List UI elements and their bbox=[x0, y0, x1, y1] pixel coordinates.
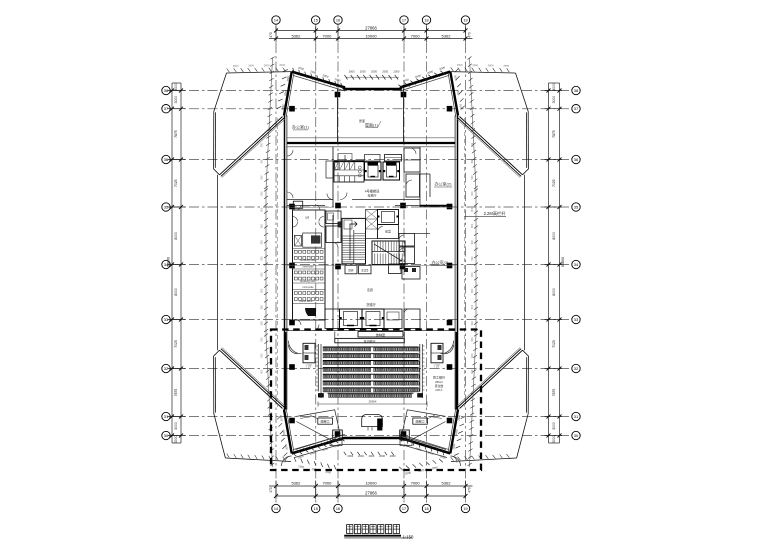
svg-text:员工餐厅: 员工餐厅 bbox=[433, 375, 445, 380]
svg-text:dressing room: dressing room bbox=[300, 280, 316, 283]
svg-text:19: 19 bbox=[463, 507, 467, 511]
svg-text:10000: 10000 bbox=[365, 481, 377, 486]
svg-text:900: 900 bbox=[471, 240, 474, 245]
svg-text:470: 470 bbox=[269, 487, 273, 493]
svg-text:8000: 8000 bbox=[552, 232, 556, 240]
svg-text:2000: 2000 bbox=[379, 454, 385, 458]
svg-text:7875: 7875 bbox=[174, 130, 178, 138]
svg-text:门厅: 门厅 bbox=[306, 364, 312, 368]
svg-text:900: 900 bbox=[261, 337, 264, 342]
svg-text:电梯厅: 电梯厅 bbox=[367, 193, 376, 198]
svg-text:多功能厅: 多功能厅 bbox=[363, 338, 375, 343]
svg-text:前室: 前室 bbox=[385, 229, 391, 234]
svg-text:470: 470 bbox=[269, 32, 273, 38]
svg-text:门厅: 门厅 bbox=[434, 364, 440, 368]
svg-text:屋面: 屋面 bbox=[359, 118, 365, 123]
svg-text:17: 17 bbox=[402, 507, 406, 511]
svg-text:疏散口: 疏散口 bbox=[415, 419, 424, 424]
svg-text:3000: 3000 bbox=[552, 96, 556, 104]
svg-text:16: 16 bbox=[336, 507, 340, 511]
svg-text:8000: 8000 bbox=[174, 288, 178, 296]
svg-text:管井: 管井 bbox=[348, 268, 354, 272]
svg-text:走廊: 走廊 bbox=[367, 287, 373, 292]
svg-text:470: 470 bbox=[468, 487, 472, 493]
svg-text:疏散口: 疏散口 bbox=[320, 419, 329, 424]
svg-text:办公室(3): 办公室(3) bbox=[432, 259, 450, 265]
svg-text:3115: 3115 bbox=[361, 268, 368, 272]
svg-text:230人: 230人 bbox=[435, 388, 443, 392]
svg-text:900: 900 bbox=[471, 175, 474, 180]
svg-text:5362: 5362 bbox=[442, 481, 452, 486]
svg-text:34: 34 bbox=[574, 262, 579, 267]
svg-text:470: 470 bbox=[468, 32, 472, 38]
svg-text:5362: 5362 bbox=[442, 33, 452, 38]
svg-text:36: 36 bbox=[574, 157, 579, 162]
svg-text:commode: commode bbox=[303, 286, 315, 289]
svg-text:900: 900 bbox=[471, 321, 474, 326]
svg-text:8000: 8000 bbox=[552, 288, 556, 296]
svg-text:17: 17 bbox=[402, 19, 406, 23]
svg-text:2000: 2000 bbox=[371, 70, 377, 74]
svg-text:2000: 2000 bbox=[279, 64, 285, 67]
svg-text:900: 900 bbox=[261, 321, 264, 326]
svg-text:2000: 2000 bbox=[457, 64, 463, 67]
svg-text:7000: 7000 bbox=[322, 33, 332, 38]
svg-text:2000: 2000 bbox=[360, 70, 366, 74]
svg-text:2000: 2000 bbox=[349, 70, 355, 74]
svg-text:dressing room: dressing room bbox=[300, 259, 316, 262]
svg-text:900: 900 bbox=[261, 142, 264, 147]
svg-text:piano store: piano store bbox=[300, 299, 313, 303]
svg-text:5362: 5362 bbox=[291, 33, 301, 38]
svg-text:3000: 3000 bbox=[174, 96, 178, 104]
svg-text:900: 900 bbox=[261, 207, 264, 212]
svg-text:900: 900 bbox=[471, 142, 474, 147]
svg-text:900: 900 bbox=[261, 304, 264, 309]
svg-text:29364: 29364 bbox=[369, 400, 377, 404]
svg-text:27866: 27866 bbox=[365, 25, 377, 30]
svg-text:900: 900 bbox=[471, 304, 474, 309]
svg-text:屋面(1): 屋面(1) bbox=[365, 121, 379, 127]
svg-text:900: 900 bbox=[261, 353, 264, 358]
svg-text:31: 31 bbox=[574, 414, 579, 419]
svg-text:35: 35 bbox=[574, 205, 579, 210]
svg-text:38: 38 bbox=[574, 88, 579, 93]
svg-text:2000: 2000 bbox=[390, 454, 396, 458]
svg-text:7025: 7025 bbox=[552, 179, 556, 187]
svg-text:办公室(1): 办公室(1) bbox=[292, 124, 310, 130]
svg-text:2000: 2000 bbox=[472, 64, 478, 67]
svg-text:2000: 2000 bbox=[358, 454, 364, 458]
svg-text:3000: 3000 bbox=[174, 422, 178, 430]
svg-text:900: 900 bbox=[261, 288, 264, 293]
svg-text:2000: 2000 bbox=[248, 64, 254, 67]
svg-text:32: 32 bbox=[574, 366, 579, 371]
svg-text:7000: 7000 bbox=[322, 481, 332, 486]
svg-text:900: 900 bbox=[261, 240, 264, 245]
svg-text:7000: 7000 bbox=[411, 33, 421, 38]
svg-text:1:150: 1:150 bbox=[403, 534, 414, 539]
svg-text:27866: 27866 bbox=[365, 491, 377, 496]
svg-text:900: 900 bbox=[471, 337, 474, 342]
svg-text:2000: 2000 bbox=[393, 70, 399, 74]
svg-text:2000: 2000 bbox=[347, 454, 353, 458]
svg-text:1间: 1间 bbox=[305, 216, 309, 220]
svg-text:37: 37 bbox=[574, 106, 579, 111]
svg-text:8000: 8000 bbox=[174, 232, 178, 240]
svg-text:900: 900 bbox=[261, 175, 264, 180]
svg-text:3000: 3000 bbox=[552, 83, 556, 91]
svg-text:18: 18 bbox=[424, 19, 428, 23]
svg-text:7025: 7025 bbox=[174, 340, 178, 348]
svg-text:30: 30 bbox=[574, 433, 579, 438]
svg-text:7875: 7875 bbox=[552, 389, 556, 397]
svg-text:3000: 3000 bbox=[552, 435, 556, 443]
svg-text:18: 18 bbox=[424, 507, 428, 511]
svg-text:16: 16 bbox=[336, 19, 340, 23]
svg-text:900: 900 bbox=[471, 159, 474, 164]
svg-text:60800: 60800 bbox=[167, 257, 171, 267]
svg-text:900: 900 bbox=[471, 288, 474, 293]
svg-text:2000: 2000 bbox=[382, 70, 388, 74]
svg-text:900: 900 bbox=[471, 369, 474, 374]
svg-text:5362: 5362 bbox=[291, 481, 301, 486]
svg-text:14: 14 bbox=[274, 507, 278, 511]
svg-text:2000: 2000 bbox=[503, 65, 509, 68]
svg-text:33: 33 bbox=[574, 317, 579, 322]
svg-text:办公室(2): 办公室(2) bbox=[435, 181, 453, 187]
svg-text:commode: commode bbox=[303, 266, 315, 269]
svg-text:7875: 7875 bbox=[552, 130, 556, 138]
svg-text:900: 900 bbox=[261, 369, 264, 374]
svg-text:900: 900 bbox=[261, 272, 264, 277]
svg-text:900: 900 bbox=[471, 207, 474, 212]
svg-text:7025: 7025 bbox=[552, 340, 556, 348]
svg-text:900: 900 bbox=[261, 256, 264, 261]
svg-text:900: 900 bbox=[261, 159, 264, 164]
svg-text:7000: 7000 bbox=[411, 481, 421, 486]
svg-text:2000: 2000 bbox=[264, 64, 270, 67]
svg-text:2.2M高栏杆: 2.2M高栏杆 bbox=[484, 210, 507, 217]
svg-text:900: 900 bbox=[471, 223, 474, 228]
svg-text:2000: 2000 bbox=[488, 64, 494, 67]
svg-text:15: 15 bbox=[314, 507, 318, 511]
svg-text:900: 900 bbox=[261, 223, 264, 228]
svg-text:60800: 60800 bbox=[561, 257, 565, 267]
svg-text:3000: 3000 bbox=[174, 435, 178, 443]
svg-text:放映室: 放映室 bbox=[376, 332, 385, 337]
svg-text:3000: 3000 bbox=[552, 422, 556, 430]
svg-text:15: 15 bbox=[314, 19, 318, 23]
svg-text:14: 14 bbox=[274, 19, 278, 23]
svg-text:10000: 10000 bbox=[365, 33, 377, 38]
svg-text:19: 19 bbox=[463, 19, 467, 23]
svg-text:2000: 2000 bbox=[369, 454, 375, 458]
svg-text:货梯厅: 货梯厅 bbox=[366, 302, 376, 307]
svg-text:900: 900 bbox=[471, 353, 474, 358]
svg-text:900: 900 bbox=[471, 256, 474, 261]
svg-text:7875: 7875 bbox=[174, 389, 178, 397]
svg-text:2000: 2000 bbox=[233, 65, 239, 68]
svg-text:3000: 3000 bbox=[174, 83, 178, 91]
svg-text:900: 900 bbox=[471, 191, 474, 196]
svg-text:7025: 7025 bbox=[174, 179, 178, 187]
svg-text:900: 900 bbox=[261, 191, 264, 196]
svg-text:900: 900 bbox=[471, 272, 474, 277]
